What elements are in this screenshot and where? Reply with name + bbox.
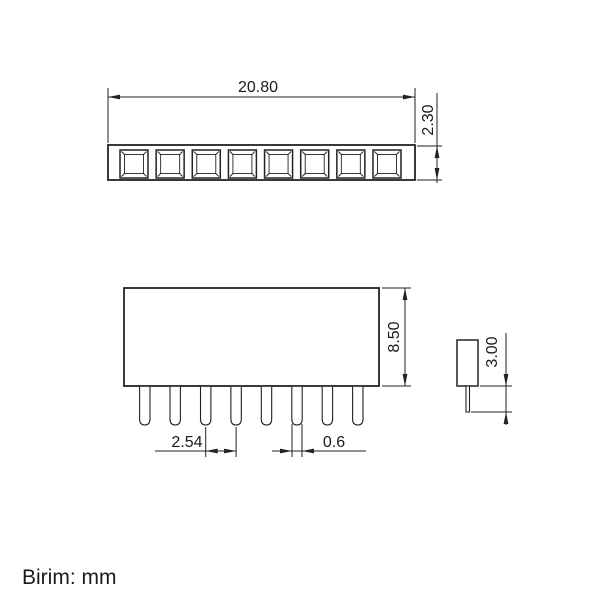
arrowhead-right: [224, 449, 236, 454]
socket-hole: [265, 150, 293, 178]
pin: [261, 387, 271, 425]
socket-hole: [192, 150, 220, 178]
top-view: 20.80 2.30: [108, 79, 442, 183]
dimension-pin-width: 0.6: [272, 424, 366, 457]
arrowhead-left: [206, 449, 218, 454]
dimension-body-height: 8.50: [382, 288, 411, 386]
dimension-label-strip-height: 2.30: [420, 104, 437, 135]
technical-drawing-canvas: 20.80 2.30 8.50: [0, 0, 600, 600]
pin: [140, 387, 150, 425]
socket-hole: [337, 150, 365, 178]
dimension-label-overall-width: 20.80: [238, 79, 278, 96]
pin-header-drawing: 20.80 2.30 8.50: [0, 0, 600, 600]
unit-note: Birim: mm: [22, 566, 116, 589]
socket-hole: [228, 150, 256, 178]
pin: [170, 387, 180, 425]
arrowhead-up: [435, 146, 440, 158]
dimension-overall-width: 20.80: [108, 79, 415, 143]
front-view-body: [124, 288, 379, 386]
socket-hole: [156, 150, 184, 178]
arrowhead-up: [504, 412, 509, 424]
socket-hole: [120, 150, 148, 178]
dimension-label-pin-width: 0.6: [323, 434, 345, 451]
dimension-strip-height: 2.30: [417, 93, 442, 183]
pin: [292, 387, 302, 425]
arrowhead-left: [302, 449, 314, 454]
arrowhead-down: [504, 374, 509, 386]
side-view-pin: [466, 386, 470, 412]
dimension-label-body-height: 8.50: [386, 321, 403, 352]
dimension-label-pin-pitch: 2.54: [171, 434, 202, 451]
socket-hole: [373, 150, 401, 178]
arrowhead-left: [108, 95, 120, 100]
arrowhead-down: [403, 374, 408, 386]
side-view-body: [457, 340, 478, 386]
pin: [322, 387, 332, 425]
arrowhead-up: [403, 288, 408, 300]
arrowhead-right: [280, 449, 292, 454]
top-view-body: [108, 145, 415, 180]
front-view-pins: [140, 387, 363, 425]
pin: [201, 387, 211, 425]
dimension-label-pin-length: 3.00: [484, 336, 501, 367]
socket-hole: [301, 150, 329, 178]
arrowhead-right: [403, 95, 415, 100]
front-view: 8.50 2.54 0.6: [124, 288, 411, 457]
side-view: 3.00: [457, 333, 512, 425]
dimension-pin-pitch: 2.54: [155, 427, 236, 457]
arrowhead-down: [435, 168, 440, 180]
pin: [353, 387, 363, 425]
pin: [231, 387, 241, 425]
